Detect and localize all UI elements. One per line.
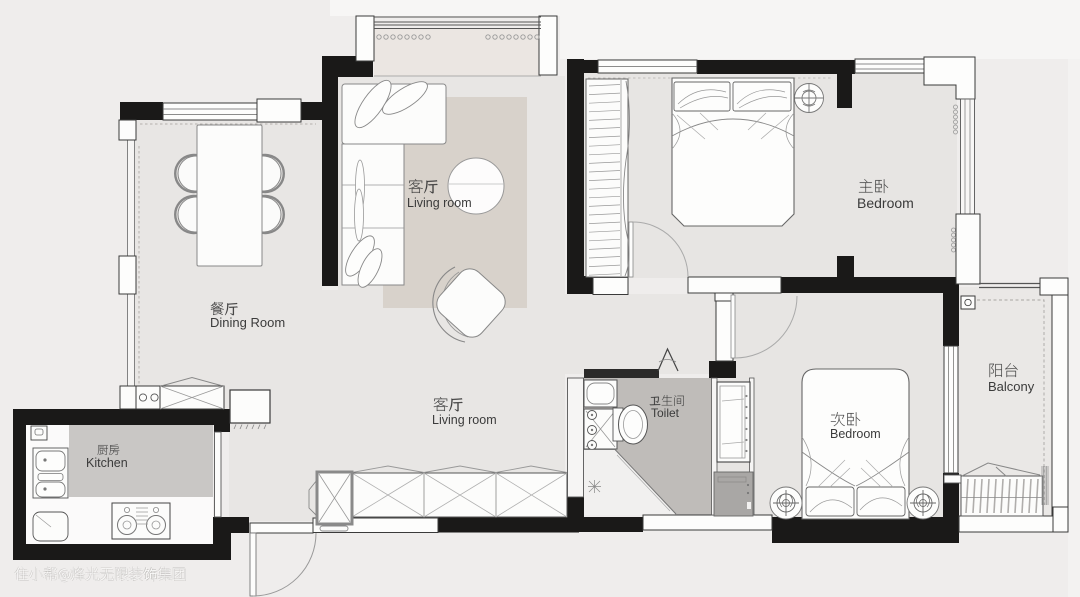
svg-text:Balcony: Balcony xyxy=(988,379,1035,394)
svg-text:Kitchen: Kitchen xyxy=(86,456,128,470)
svg-text:Living room: Living room xyxy=(407,196,472,210)
svg-text:Bedroom: Bedroom xyxy=(857,195,914,211)
svg-text:Toilet: Toilet xyxy=(651,406,680,420)
svg-text:Bedroom: Bedroom xyxy=(830,427,881,441)
svg-text:Living room: Living room xyxy=(432,413,497,427)
svg-text:Dining Room: Dining Room xyxy=(210,315,285,330)
